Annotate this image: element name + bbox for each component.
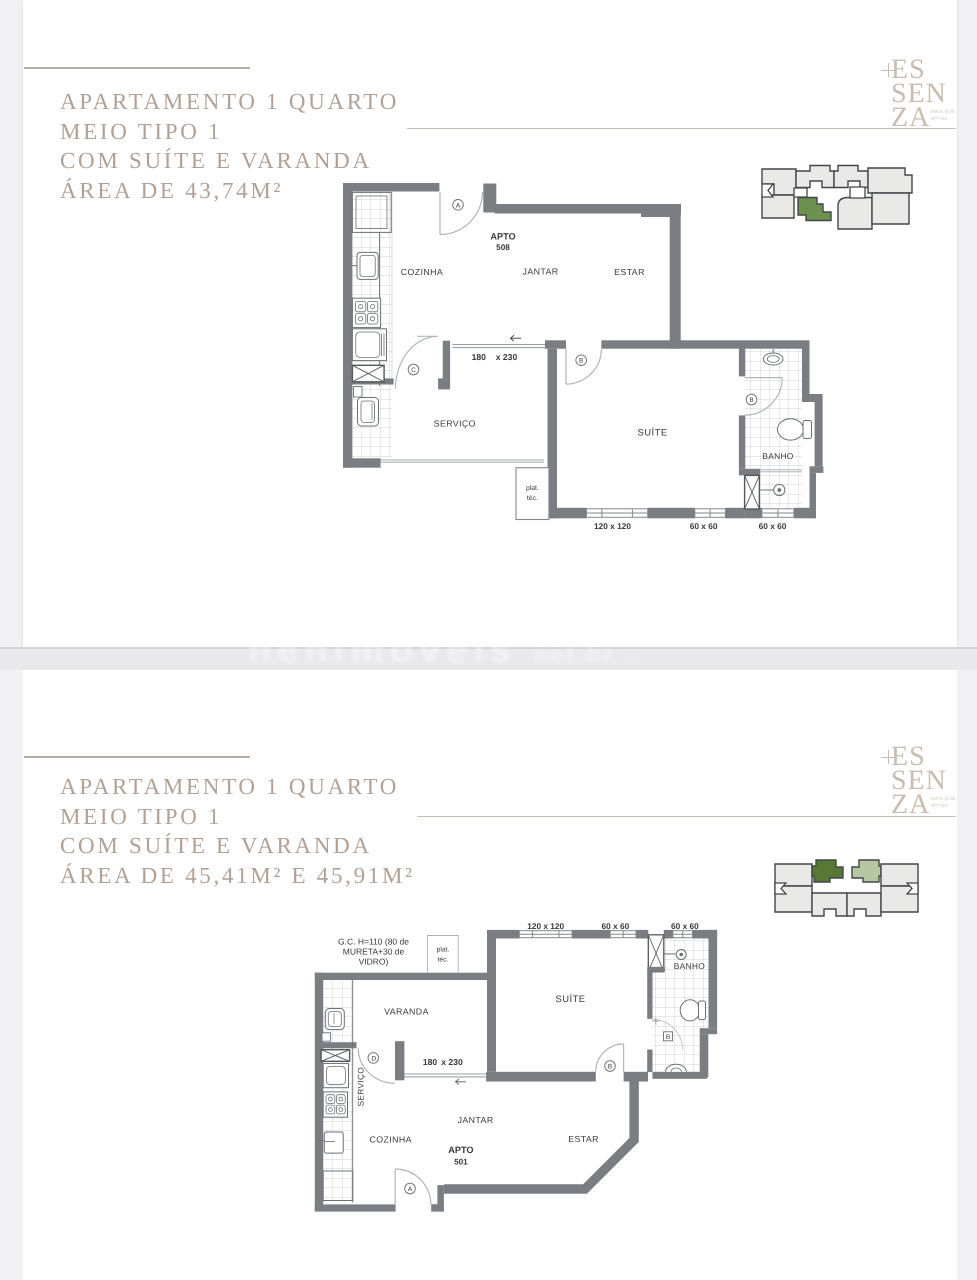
- svg-text:téc.: téc.: [527, 495, 538, 502]
- svg-text:A: A: [408, 1186, 413, 1193]
- svg-text:VARANDA: VARANDA: [384, 1007, 429, 1017]
- svg-text:plat.: plat.: [526, 485, 539, 492]
- svg-text:JANTAR: JANTAR: [523, 267, 559, 277]
- svg-text:SUÍTE: SUÍTE: [555, 993, 585, 1004]
- svg-text:VIDRO): VIDRO): [359, 957, 389, 967]
- svg-text:SUÍTE: SUÍTE: [638, 427, 668, 438]
- svg-text:APTO: APTO: [448, 1145, 473, 1155]
- svg-text:180: 180: [472, 352, 487, 362]
- svg-text:BANHO: BANHO: [762, 451, 793, 461]
- svg-text:C: C: [411, 367, 416, 374]
- svg-text:B: B: [749, 397, 753, 404]
- svg-text:A: A: [456, 202, 461, 209]
- svg-text:60 x 60: 60 x 60: [690, 521, 718, 531]
- svg-text:B: B: [608, 1064, 612, 1071]
- svg-text:G.C. H=110 (80 de: G.C. H=110 (80 de: [338, 936, 409, 946]
- svg-text:60 x 60: 60 x 60: [759, 521, 787, 531]
- svg-text:APTO: APTO: [490, 232, 515, 242]
- svg-text:B: B: [579, 358, 583, 365]
- svg-text:180: 180: [423, 1057, 438, 1067]
- svg-text:SERVIÇO: SERVIÇO: [356, 1067, 365, 1107]
- svg-text:508: 508: [496, 243, 510, 252]
- svg-text:ESTAR: ESTAR: [568, 1134, 599, 1144]
- svg-text:COZINHA: COZINHA: [370, 1134, 412, 1144]
- svg-text:60 x 60: 60 x 60: [602, 921, 630, 931]
- svg-text:60 x 60: 60 x 60: [671, 921, 699, 931]
- svg-text:téc.: téc.: [438, 957, 449, 964]
- svg-text:501: 501: [454, 1157, 468, 1166]
- svg-text:plat.: plat.: [437, 947, 450, 954]
- svg-text:120 x 120: 120 x 120: [594, 521, 631, 531]
- svg-text:MURETA+30 de: MURETA+30 de: [343, 947, 405, 957]
- svg-text:x 230: x 230: [441, 1057, 463, 1067]
- svg-text:x 230: x 230: [496, 352, 518, 362]
- svg-text:D: D: [372, 1056, 377, 1063]
- svg-text:SERVIÇO: SERVIÇO: [434, 419, 476, 429]
- svg-text:ESTAR: ESTAR: [614, 267, 645, 277]
- svg-text:JANTAR: JANTAR: [458, 1115, 494, 1125]
- svg-text:B: B: [666, 1034, 670, 1041]
- svg-text:COZINHA: COZINHA: [401, 267, 443, 277]
- svg-text:BANHO: BANHO: [674, 961, 705, 971]
- svg-text:120 x 120: 120 x 120: [527, 921, 564, 931]
